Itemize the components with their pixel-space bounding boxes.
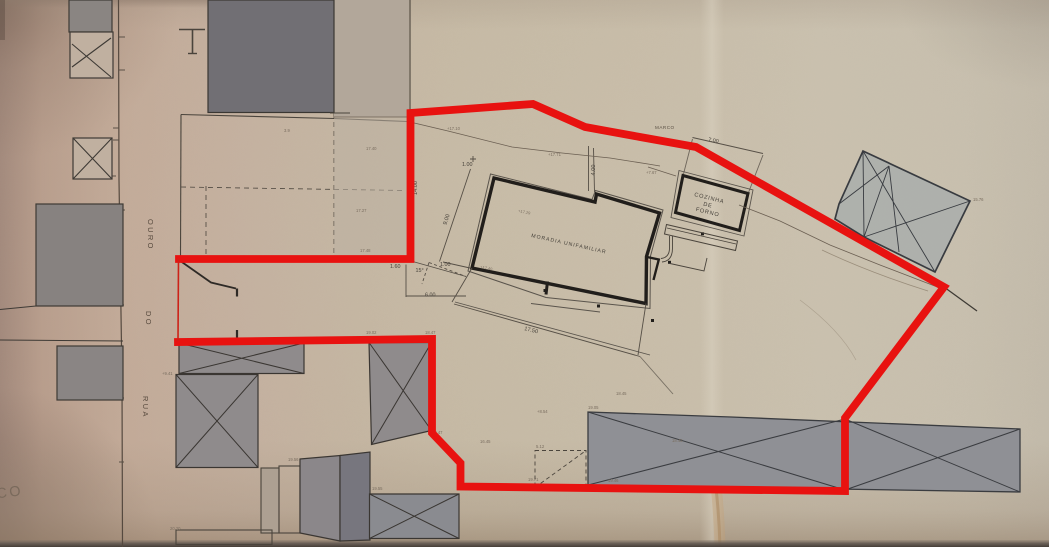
svg-text:6.00: 6.00 xyxy=(425,293,436,299)
svg-text:5.12: 5.12 xyxy=(536,444,545,449)
svg-text:17.40: 17.40 xyxy=(366,146,377,151)
svg-text:19.71: 19.71 xyxy=(528,477,539,482)
svg-text:3.9: 3.9 xyxy=(284,128,290,133)
svg-text:15.76: 15.76 xyxy=(973,197,984,202)
svg-text:19.05: 19.05 xyxy=(588,405,599,410)
svg-text:4.00: 4.00 xyxy=(591,165,597,176)
svg-text:+9.41: +9.41 xyxy=(162,371,173,376)
svg-text:19.55: 19.55 xyxy=(372,486,383,491)
svg-text:1.00: 1.00 xyxy=(440,262,451,268)
svg-text:+17.71: +17.71 xyxy=(548,152,562,157)
svg-text:19.46: 19.46 xyxy=(608,478,619,483)
svg-text:18.45: 18.45 xyxy=(616,391,627,396)
svg-text:16.45: 16.45 xyxy=(480,439,491,444)
svg-text:DO: DO xyxy=(144,311,153,327)
svg-text:18.43: 18.43 xyxy=(672,438,683,443)
svg-text:20.20: 20.20 xyxy=(170,526,181,531)
svg-text:CO: CO xyxy=(0,483,24,502)
svg-text:15°: 15° xyxy=(416,268,424,274)
svg-text:19.56: 19.56 xyxy=(288,457,299,462)
svg-text:OURO: OURO xyxy=(146,219,155,251)
svg-text:17.48: 17.48 xyxy=(360,248,371,253)
svg-text:RUA: RUA xyxy=(141,396,150,419)
svg-text:+8.54: +8.54 xyxy=(537,409,548,414)
svg-text:1.60: 1.60 xyxy=(390,264,401,270)
svg-text:19.02: 19.02 xyxy=(366,330,377,335)
svg-text:MARCO: MARCO xyxy=(655,125,675,130)
svg-text:+17.10: +17.10 xyxy=(447,126,461,131)
svg-text:18.47: 18.47 xyxy=(425,330,436,335)
svg-text:1.00: 1.00 xyxy=(462,162,473,168)
svg-text:17.27: 17.27 xyxy=(356,208,367,213)
svg-text:+7.67: +7.67 xyxy=(646,170,657,175)
